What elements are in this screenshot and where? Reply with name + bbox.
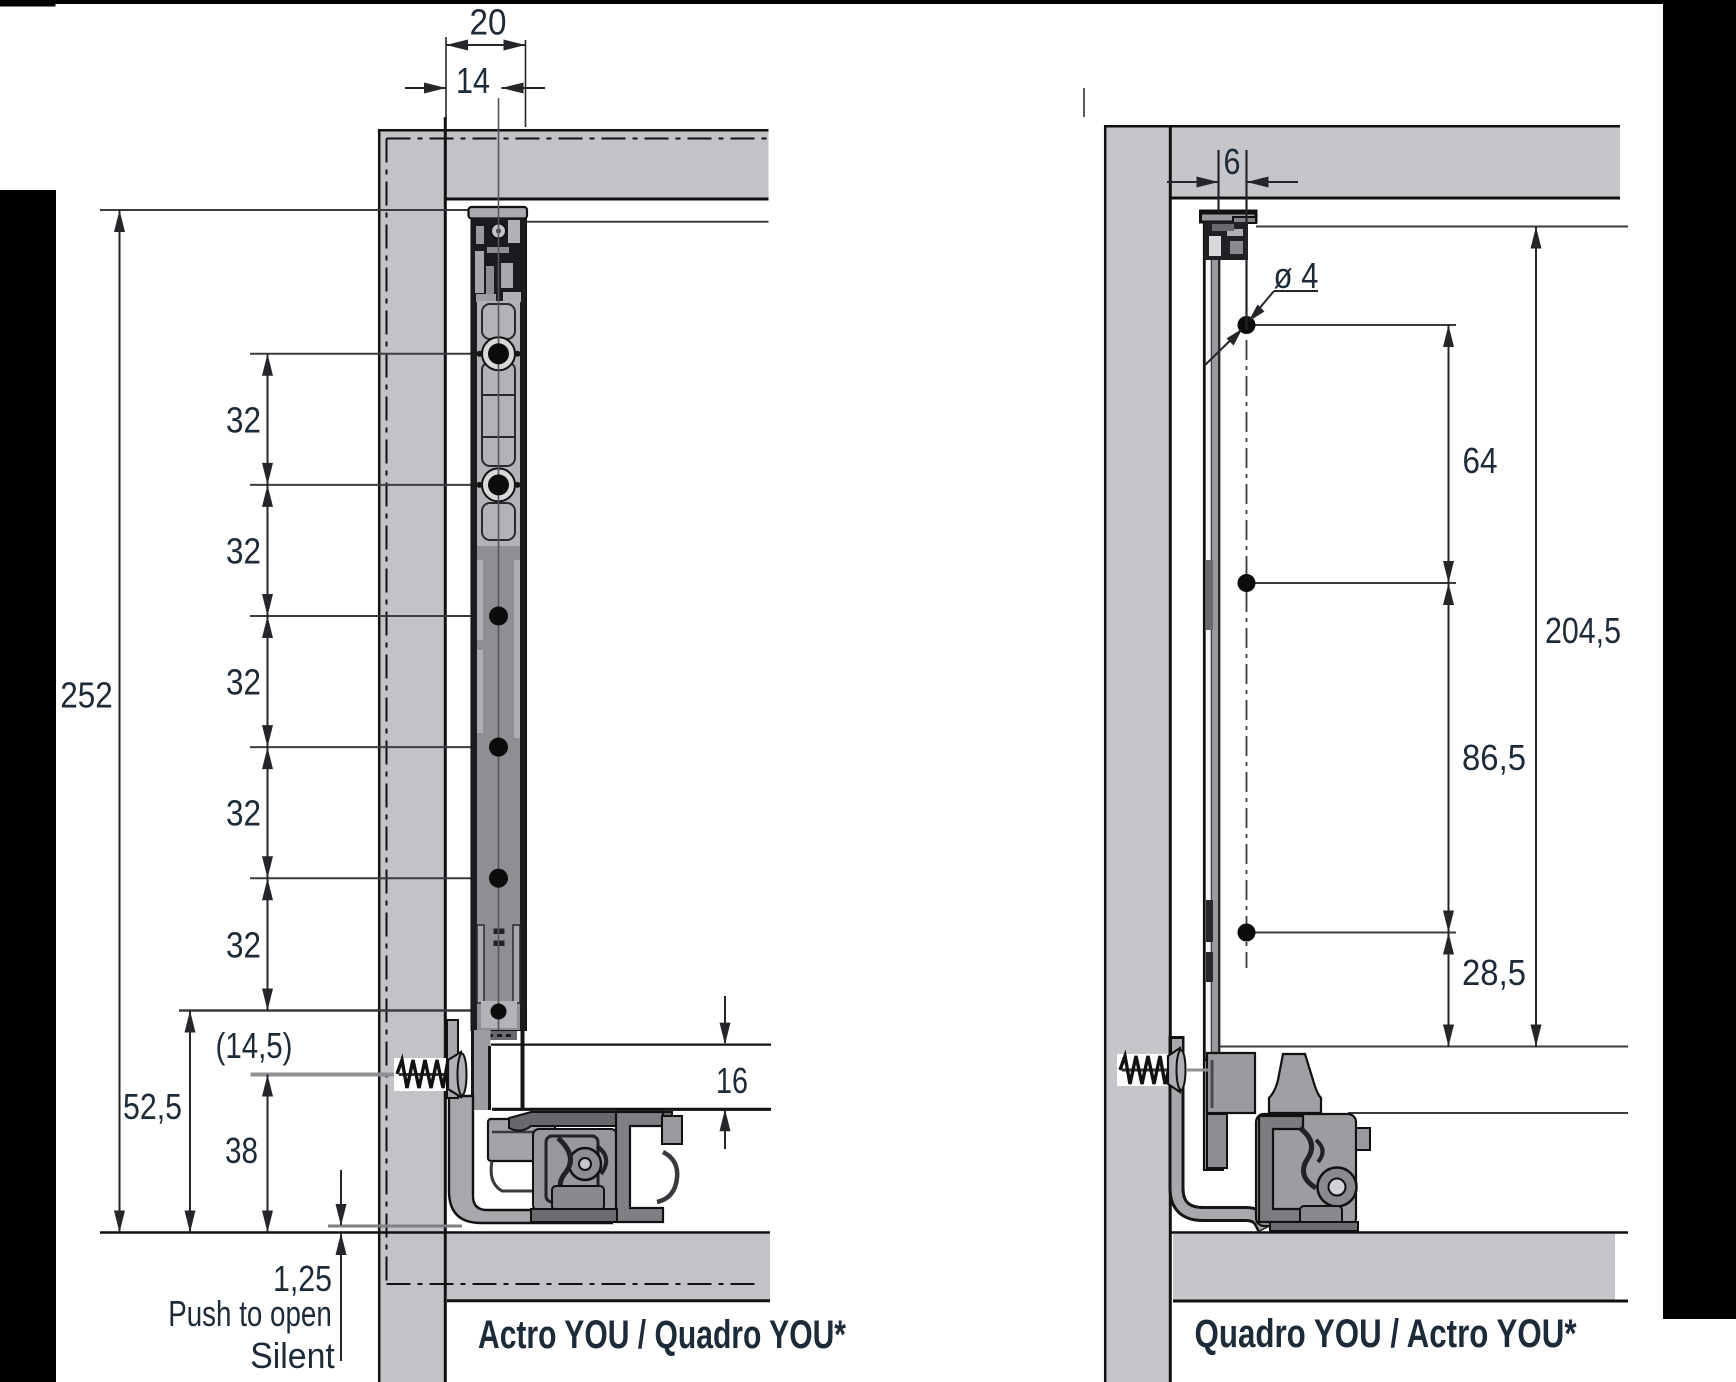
- svg-text:204,5: 204,5: [1545, 610, 1621, 651]
- svg-text:14: 14: [456, 60, 490, 101]
- svg-text:Silent: Silent: [250, 1335, 335, 1376]
- svg-text:32: 32: [226, 530, 261, 571]
- svg-text:6: 6: [1224, 141, 1241, 182]
- svg-text:28,5: 28,5: [1462, 952, 1526, 993]
- svg-text:(14,5): (14,5): [216, 1025, 293, 1066]
- svg-text:Quadro YOU / Actro YOU*: Quadro YOU / Actro YOU*: [1195, 1312, 1577, 1356]
- svg-text:38: 38: [225, 1130, 258, 1171]
- svg-text:52,5: 52,5: [123, 1086, 182, 1127]
- svg-text:32: 32: [226, 793, 261, 834]
- svg-text:Actro YOU / Quadro YOU*: Actro YOU / Quadro YOU*: [478, 1313, 846, 1357]
- svg-text:64: 64: [1463, 440, 1498, 481]
- svg-text:32: 32: [226, 924, 261, 965]
- svg-text:20: 20: [470, 2, 507, 43]
- svg-text:ø 4: ø 4: [1274, 255, 1319, 296]
- svg-text:32: 32: [226, 399, 261, 440]
- svg-text:Push to open: Push to open: [168, 1293, 332, 1334]
- svg-text:16: 16: [716, 1060, 748, 1101]
- svg-text:32: 32: [226, 662, 261, 703]
- svg-text:86,5: 86,5: [1462, 737, 1526, 778]
- svg-text:252: 252: [60, 675, 113, 716]
